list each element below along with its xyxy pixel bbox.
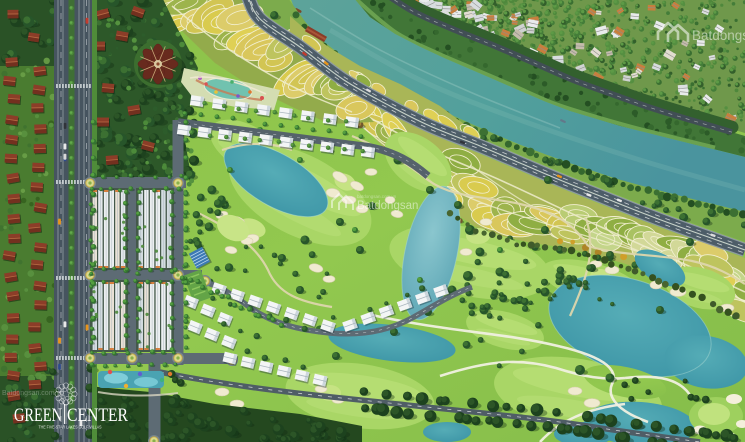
svg-text:Batdongsan.com.vn: Batdongsan.com.vn bbox=[2, 390, 64, 397]
svg-text:Batdongsan: Batdongsan bbox=[357, 200, 418, 212]
svg-text:GREEN: GREEN bbox=[14, 405, 62, 426]
svg-text:Batdongsan: Batdongsan bbox=[692, 28, 745, 43]
svg-text:batdongsan.com.vn: batdongsan.com.vn bbox=[357, 194, 397, 199]
svg-text:CENTER: CENTER bbox=[67, 405, 128, 426]
svg-text:THE FIVE-STAR LAKES GOLF VILLA: THE FIVE-STAR LAKES GOLF VILLAS bbox=[39, 425, 102, 430]
